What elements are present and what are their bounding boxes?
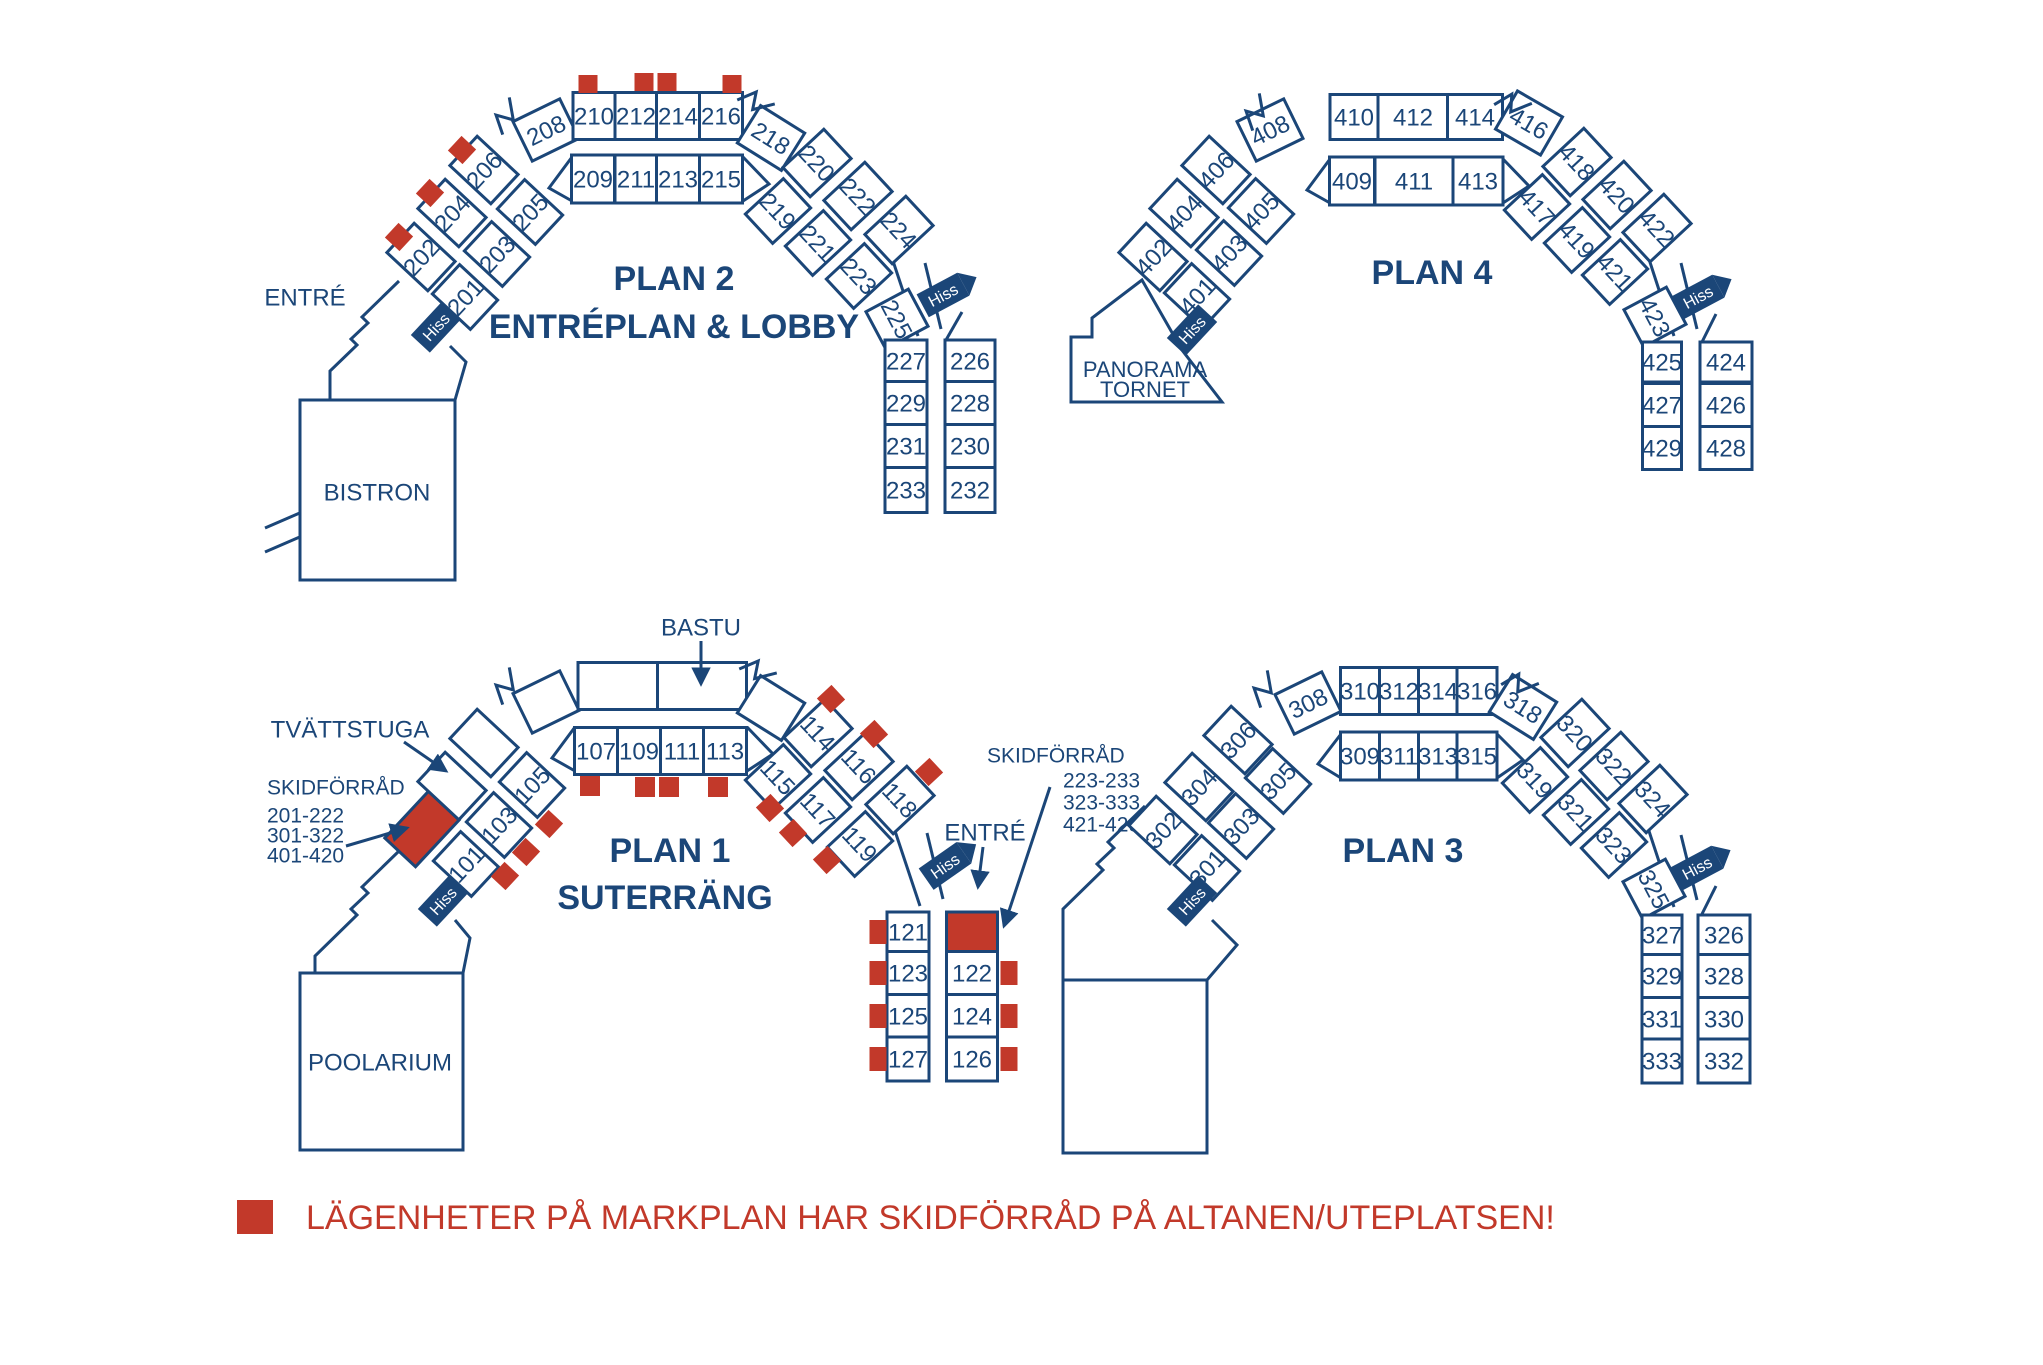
unit-cell-107: 107 <box>575 728 618 775</box>
unit-cell-313: 313 <box>1418 732 1458 780</box>
ski-storage-marker <box>870 1047 887 1071</box>
unit-number: 213 <box>658 167 698 194</box>
legend: LÄGENHETER PÅ MARKPLAN HAR SKIDFÖRRÅD PÅ… <box>237 1199 1555 1237</box>
unit-cell-416: 416 <box>1495 91 1562 155</box>
unit-number: 425 <box>1642 350 1682 377</box>
unit-cell-209: 209 <box>572 155 615 203</box>
unit-cell-409: 409 <box>1330 157 1375 205</box>
unit-cell-124: 124 <box>947 995 998 1038</box>
unit-cell-126: 126 <box>947 1037 998 1081</box>
ski-storage-marker <box>723 75 742 93</box>
ski-storage-marker <box>870 1004 887 1028</box>
tvattstuga-label: TVÄTTSTUGA <box>271 717 430 744</box>
unit-number: 315 <box>1457 744 1497 771</box>
building-outline <box>450 346 466 400</box>
unit-cell-426: 426 <box>1700 384 1752 427</box>
panorama-label-line2: TORNET <box>1100 377 1190 402</box>
unit-number: 410 <box>1334 105 1374 132</box>
unit-number: 123 <box>888 961 928 988</box>
unit-number: 329 <box>1642 964 1682 991</box>
unit-number: 429 <box>1642 436 1682 463</box>
unit-number: 229 <box>886 391 926 418</box>
unit-number: 313 <box>1418 744 1458 771</box>
bistron-label: BISTRON <box>324 480 431 507</box>
unit-cell-411: 411 <box>1375 157 1453 205</box>
skidforrad-right-range-1: 223-233 <box>1063 770 1140 793</box>
corridor-edge <box>1702 886 1716 914</box>
ski-storage-marker <box>658 73 677 91</box>
unit-cell-326: 326 <box>1698 915 1750 955</box>
plan3-base-building <box>1063 980 1207 1153</box>
unit-number: 127 <box>888 1047 928 1074</box>
plan2-title: PLAN 2 <box>614 260 735 298</box>
unit-number: 210 <box>574 104 614 131</box>
unit-number: 233 <box>886 478 926 505</box>
unit-cell-425: 425 <box>1642 342 1682 382</box>
unit-number: 228 <box>950 391 990 418</box>
unit-number: 331 <box>1642 1007 1682 1034</box>
unit-cell-216: 216 <box>700 93 743 140</box>
ski-storage-marker <box>635 777 655 797</box>
unit-cell-312: 312 <box>1379 668 1419 715</box>
unit-cell-214: 214 <box>657 93 700 140</box>
unit-number: 125 <box>888 1004 928 1031</box>
unit-number: 316 <box>1457 679 1497 706</box>
unit-number: 426 <box>1706 393 1746 420</box>
building-section-cell <box>578 663 658 710</box>
ski-storage-marker <box>580 776 600 796</box>
unit-number: 414 <box>1455 105 1495 132</box>
unit-number: 215 <box>701 167 741 194</box>
ski-storage-marker <box>708 777 728 797</box>
unit-number: 312 <box>1379 679 1419 706</box>
unit-cell-211: 211 <box>615 155 657 203</box>
unit-number: 212 <box>616 104 656 131</box>
unit-cell-329: 329 <box>1642 955 1682 998</box>
section-joint-zigzag <box>1246 670 1282 707</box>
unit-cell-208: 208 <box>513 99 579 161</box>
unit-number: 121 <box>888 920 928 947</box>
unit-cell-229: 229 <box>885 382 927 425</box>
plan1-floorplan: 1011031051071091111131141161181151171191… <box>267 615 1140 1150</box>
unit-cell-428: 428 <box>1700 427 1752 470</box>
unit-cell-226: 226 <box>945 340 995 382</box>
poolarium-label: POOLARIUM <box>308 1050 452 1077</box>
unit-cell-315: 315 <box>1457 732 1497 780</box>
plan2-subtitle: ENTRÉPLAN & LOBBY <box>489 308 860 346</box>
corridor-edge <box>1702 314 1716 342</box>
unit-cell-111: 111 <box>661 728 704 775</box>
skidforrad-right-range-2: 323-333 <box>1063 792 1140 815</box>
resort-floorplan-diagram: 2022042062082102122142162182202222242012… <box>0 0 2043 1365</box>
unit-cell-109: 109 <box>618 728 661 775</box>
skidforrad-right-arrow <box>1004 787 1050 926</box>
unit-number: 412 <box>1393 105 1433 132</box>
building-outline <box>455 920 470 973</box>
unit-cell-330: 330 <box>1698 998 1750 1041</box>
plan1-subtitle: SUTERRÄNG <box>557 879 772 917</box>
unit-number: 333 <box>1642 1049 1682 1076</box>
unit-cell-121: 121 <box>887 912 929 952</box>
floorplan-page: 2022042062082102122142162182202222242012… <box>0 0 2043 1365</box>
unit-number: 226 <box>950 349 990 376</box>
skidforrad-left-range-3: 401-420 <box>267 845 344 868</box>
unit-number: 209 <box>573 167 613 194</box>
unit-cell-210: 210 <box>573 93 615 140</box>
building-section-cell <box>513 671 579 733</box>
corner-wedge <box>1318 734 1341 778</box>
unit-cell-227: 227 <box>885 340 927 382</box>
building-outline <box>315 851 399 973</box>
unit-cell-113: 113 <box>704 728 747 775</box>
unit-number: 113 <box>706 739 744 766</box>
unit-cell-414: 414 <box>1448 95 1503 140</box>
unit-number: 214 <box>658 104 698 131</box>
unit-cell-332: 332 <box>1698 1039 1750 1083</box>
ski-storage-marker <box>1001 1004 1018 1028</box>
entre-arrow <box>978 847 983 887</box>
unit-cell-318: 318 <box>1489 675 1556 740</box>
unit-number: 107 <box>576 739 616 766</box>
corner-wedge <box>1307 159 1330 203</box>
unit-number: 409 <box>1332 169 1372 196</box>
unit-cell-123: 123 <box>887 952 929 995</box>
unit-cell-213: 213 <box>657 155 700 203</box>
unit-number: 211 <box>617 167 655 194</box>
entrance-ski-storage <box>947 912 998 952</box>
unit-cell-215: 215 <box>700 155 743 203</box>
unit-cell-311: 311 <box>1380 732 1419 780</box>
plan3-floorplan: 3023043063083103123143163183203223243013… <box>1063 667 1750 1153</box>
unit-number: 122 <box>952 961 992 988</box>
unit-number: 310 <box>1340 679 1380 706</box>
corridor-edge <box>946 312 962 340</box>
unit-cell-125: 125 <box>887 995 929 1038</box>
unit-number: 326 <box>1704 923 1744 950</box>
unit-cell-412: 412 <box>1378 95 1448 140</box>
unit-cell-413: 413 <box>1453 157 1503 205</box>
hiss-elevator-marker: Hiss <box>1671 839 1737 891</box>
unit-number: 232 <box>950 478 990 505</box>
unit-number: 413 <box>1458 169 1498 196</box>
unit-cell-333: 333 <box>1642 1039 1682 1083</box>
unit-number: 314 <box>1418 679 1458 706</box>
corridor-edge <box>892 822 920 906</box>
corner-wedge <box>549 157 572 201</box>
unit-number: 427 <box>1642 393 1682 420</box>
unit-cell-327: 327 <box>1642 915 1682 955</box>
entre-label-plan2: ENTRÉ <box>264 285 345 312</box>
hiss-elevator-marker: Hiss <box>1672 268 1738 320</box>
unit-cell-122: 122 <box>947 952 998 995</box>
ski-storage-marker <box>659 777 679 797</box>
unit-cell-212: 212 <box>615 93 657 140</box>
ski-storage-marker <box>635 73 654 91</box>
plan3-title: PLAN 3 <box>1343 832 1464 870</box>
unit-cell-127: 127 <box>887 1037 929 1081</box>
unit-cell-231: 231 <box>885 425 927 468</box>
ski-storage-marker <box>579 75 598 93</box>
unit-cell-228: 228 <box>945 382 995 425</box>
unit-number: 109 <box>619 739 659 766</box>
unit-cell-328: 328 <box>1698 955 1750 998</box>
unit-cell-331: 331 <box>1642 998 1682 1041</box>
legend-text: LÄGENHETER PÅ MARKPLAN HAR SKIDFÖRRÅD PÅ… <box>306 1199 1555 1237</box>
ski-storage-marker <box>1001 1047 1018 1071</box>
unit-number: 332 <box>1704 1049 1744 1076</box>
unit-number: 411 <box>1395 169 1433 196</box>
entre-label-plan1: ENTRÉ <box>944 820 1025 847</box>
ski-storage-marker <box>870 920 887 944</box>
bastu-label: BASTU <box>661 615 741 642</box>
corner-wedge <box>552 727 575 771</box>
unit-cell-308: 308 <box>1275 672 1341 734</box>
unit-number: 330 <box>1704 1007 1744 1034</box>
door-mark <box>265 536 302 552</box>
unit-number: 126 <box>952 1047 992 1074</box>
unit-cell-410: 410 <box>1330 95 1378 140</box>
unit-cell-233: 233 <box>885 468 927 513</box>
unit-number: 327 <box>1642 923 1682 950</box>
unit-cell-408: 408 <box>1237 99 1303 161</box>
unit-cell-230: 230 <box>945 425 995 468</box>
unit-number: 424 <box>1706 350 1746 377</box>
door-mark <box>265 512 302 528</box>
unit-number: 227 <box>886 349 926 376</box>
unit-number: 311 <box>1380 744 1418 771</box>
unit-cell-429: 429 <box>1642 427 1682 470</box>
unit-cell-424: 424 <box>1700 342 1752 382</box>
unit-number: 230 <box>950 434 990 461</box>
ski-storage-marker <box>1001 961 1018 985</box>
legend-ski-storage-swatch <box>237 1200 273 1234</box>
plan4-title: PLAN 4 <box>1372 254 1493 292</box>
unit-number: 231 <box>886 434 926 461</box>
plan4-floorplan: 4024044064084104124144164184204224014034… <box>1071 87 1752 469</box>
plan1-title: PLAN 1 <box>610 832 731 870</box>
ski-storage-marker <box>870 961 887 985</box>
skidforrad-left-title: SKIDFÖRRÅD <box>267 777 405 800</box>
building-outline <box>1207 920 1237 980</box>
unit-cell-309: 309 <box>1340 732 1380 780</box>
unit-number: 111 <box>664 739 700 766</box>
unit-number: 216 <box>701 104 741 131</box>
unit-number: 328 <box>1704 964 1744 991</box>
unit-cell-310: 310 <box>1340 668 1380 715</box>
unit-number: 428 <box>1706 436 1746 463</box>
unit-number: 309 <box>1340 744 1380 771</box>
unit-cell-427: 427 <box>1642 384 1682 427</box>
unit-cell-232: 232 <box>945 468 995 513</box>
unit-number: 124 <box>952 1004 992 1031</box>
plan2-floorplan: 2022042062082102122142162182202222242012… <box>264 73 995 580</box>
unit-cell-314: 314 <box>1418 668 1458 715</box>
skidforrad-right-title: SKIDFÖRRÅD <box>987 745 1125 768</box>
